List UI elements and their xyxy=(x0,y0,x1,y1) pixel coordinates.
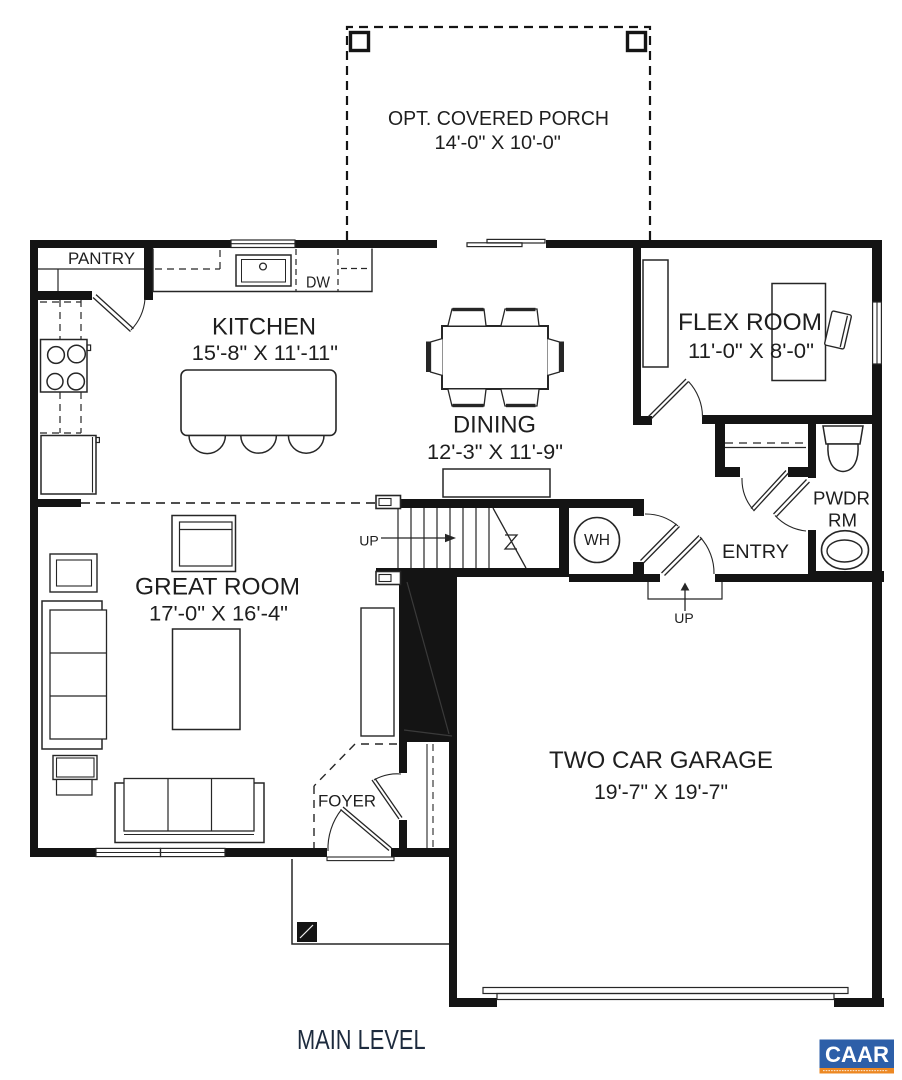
svg-text:ENTRY: ENTRY xyxy=(722,541,789,563)
svg-text:15'-8" X 11'-11": 15'-8" X 11'-11" xyxy=(192,342,338,365)
svg-text:TWO CAR GARAGE: TWO CAR GARAGE xyxy=(549,747,773,774)
svg-text:PANTRY: PANTRY xyxy=(68,250,135,268)
svg-text:19'-7" X 19'-7": 19'-7" X 19'-7" xyxy=(594,781,728,804)
svg-text:OPT. COVERED PORCH: OPT. COVERED PORCH xyxy=(388,108,609,130)
svg-text:CAAR: CAAR xyxy=(825,1042,889,1067)
svg-text:17'-0" X 16'-4": 17'-0" X 16'-4" xyxy=(149,602,288,626)
svg-text:UP: UP xyxy=(674,610,693,626)
svg-text:11'-0" X 8'-0": 11'-0" X 8'-0" xyxy=(688,339,814,363)
svg-text:12'-3" X 11'-9": 12'-3" X 11'-9" xyxy=(427,440,563,464)
svg-text:KITCHEN: KITCHEN xyxy=(212,314,316,340)
svg-text:FOYER: FOYER xyxy=(318,793,376,811)
svg-text:MAIN LEVEL: MAIN LEVEL xyxy=(297,1024,426,1055)
svg-text:PWDR: PWDR xyxy=(813,488,870,509)
svg-text:DW: DW xyxy=(306,275,331,292)
svg-text:GREAT ROOM: GREAT ROOM xyxy=(135,574,300,601)
svg-text:WH: WH xyxy=(584,532,610,549)
svg-text:FLEX ROOM: FLEX ROOM xyxy=(678,309,822,336)
svg-text:14'-0" X 10'-0": 14'-0" X 10'-0" xyxy=(435,132,562,154)
svg-text:UP: UP xyxy=(359,533,378,549)
svg-text:DINING: DINING xyxy=(453,413,536,439)
svg-text:RM: RM xyxy=(828,510,857,531)
